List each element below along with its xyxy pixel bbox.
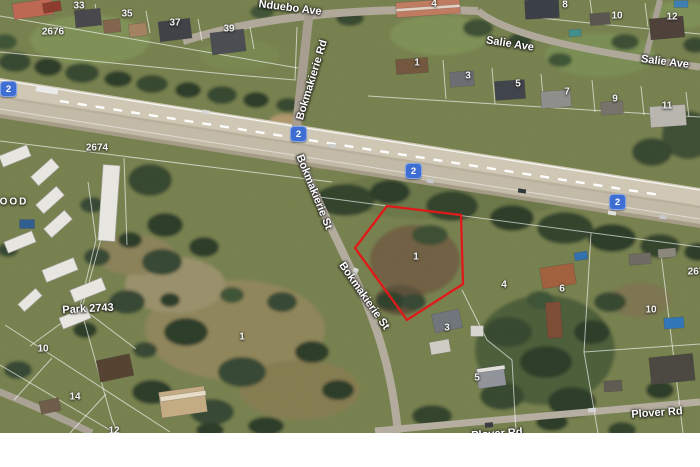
parcel-number: 3 xyxy=(444,323,450,334)
parcel-number: 5 xyxy=(474,373,480,384)
parcel-number: 10 xyxy=(611,11,622,22)
parcel-number: 3 xyxy=(465,71,471,82)
park-label: Park 2743 xyxy=(62,302,114,317)
parcel-number: 33 xyxy=(73,1,84,12)
parcel-number: 11 xyxy=(662,101,673,112)
label-overlay: Nduebo Ave Bokmakierie Rd Bokmakierie St… xyxy=(0,0,700,433)
satellite-map-viewport[interactable]: Nduebo Ave Bokmakierie Rd Bokmakierie St… xyxy=(0,0,700,433)
route-2-shield: 2 xyxy=(290,126,307,142)
parcel-number: 37 xyxy=(169,18,180,29)
parcel-number: 4 xyxy=(431,0,437,10)
road-label-plover-rd-clipped: Plover Rd xyxy=(471,426,523,433)
parcel-number: 10 xyxy=(645,305,656,316)
parcel-number: 5 xyxy=(515,79,521,90)
map-screenshot: Nduebo Ave Bokmakierie Rd Bokmakierie St… xyxy=(0,0,700,467)
road-label-salie-ave: Salie Ave xyxy=(485,34,534,53)
route-2-shield: 2 xyxy=(0,81,17,97)
parcel-number-clipped: 267 xyxy=(688,267,700,278)
parcel-number: 6 xyxy=(559,284,565,295)
parcel-number: 2676 xyxy=(42,27,64,38)
parcel-number: 7 xyxy=(564,87,570,98)
parcel-number: 4 xyxy=(501,280,507,291)
parcel-number: 2674 xyxy=(86,143,108,154)
parcel-number: 1 xyxy=(239,332,245,343)
road-label-salie-ave: Salie Ave xyxy=(640,53,689,71)
parcel-number: 8 xyxy=(562,0,568,11)
parcel-number: 1 xyxy=(414,58,420,69)
parcel-number: 12 xyxy=(666,12,677,23)
route-2-shield: 2 xyxy=(405,163,422,179)
bottom-white-margin xyxy=(0,433,700,467)
parcel-number: 14 xyxy=(69,392,80,403)
parcel-number: 39 xyxy=(223,24,234,35)
parcel-number-highlighted: 1 xyxy=(413,252,419,263)
road-label-bokmakierie-st: Bokmakierie St xyxy=(336,260,391,332)
road-label-nduebo-ave: Nduebo Ave xyxy=(258,0,322,18)
parcel-number: 35 xyxy=(121,9,132,20)
route-2-shield: 2 xyxy=(609,194,626,210)
parcel-number: 12 xyxy=(108,426,119,434)
parcel-number: 10 xyxy=(37,344,48,355)
suburb-label-partial: OOD xyxy=(0,197,28,208)
road-label-plover-rd: Plover Rd xyxy=(631,405,683,421)
road-label-bokmakierie-st: Bokmakierie St xyxy=(294,153,335,231)
parcel-number: 9 xyxy=(612,94,618,105)
road-label-bokmakierie-rd: Bokmakierie Rd xyxy=(294,38,330,121)
